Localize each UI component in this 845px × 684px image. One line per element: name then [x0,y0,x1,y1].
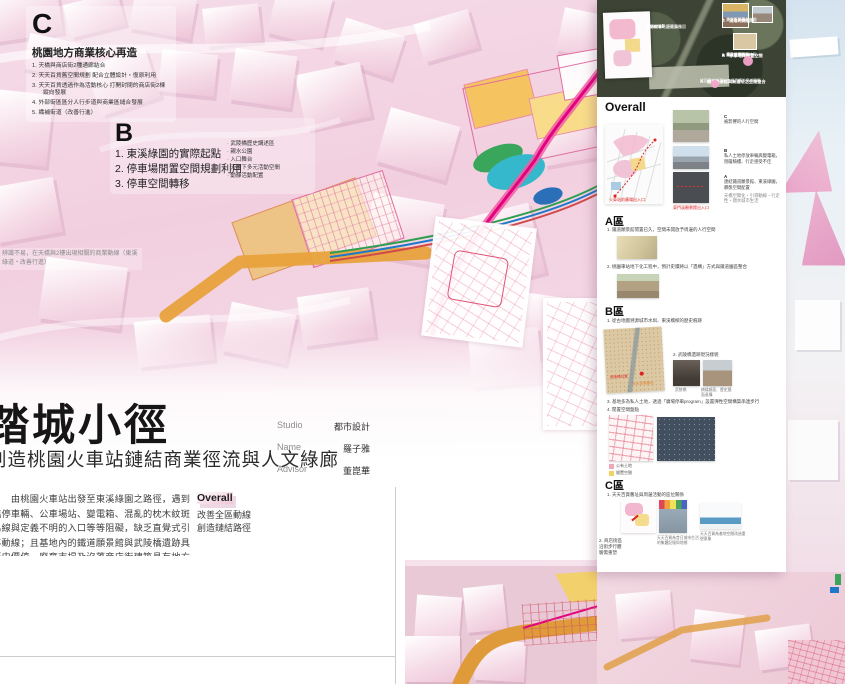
site-aerial-photo: Overall 桃園火車站至東溪綠園 步行體驗・鏈結舞台 C 沒落的商店街 1.… [597,0,786,97]
color-accent-blue [830,587,839,593]
advisor-value: 董崑華 [343,464,370,477]
historic-map: 武陵橋位置 天天百貨舊址 [603,327,664,394]
zone-b-subitem: 入口舞台 [227,157,297,165]
zone-c-item: 4. 外部街區區分人行步道與商業區縫合發展 [32,100,170,108]
photo-thumbnail-department-store [722,3,749,28]
department-store-facade-photo [659,500,687,533]
overall-caption-b: B 私人土地停放車輛與變電箱，阻礙騎樓、行走感受不佳 [724,148,782,165]
building-block [229,48,298,108]
building-block [0,177,62,244]
zone-b-subitem: 武陵橋歷史講述區 [227,141,297,149]
name-value: 羅子雅 [343,442,370,455]
route-dash-line [677,186,705,187]
aerial-plan-photo [673,172,709,203]
zoning-diagram [621,500,656,533]
pink-shard-graphic [780,125,845,205]
building-block [414,9,479,63]
zone-b-item-text: 3. 基地多為私人土地，透過「廣場停車program」設置彈性空間構築串連步行 [607,399,782,405]
legend-label: 閒置空間 [616,470,632,476]
intro-overall-line: 改善全區動線 [197,508,251,521]
highlight-block-orange [463,69,538,130]
poster-title: 踏城小徑 [0,391,170,453]
vision-hall-photo [617,236,657,259]
zone-c-item-text: 1. 天天百貨舊址與周邊活動的區位關係 [607,492,779,498]
zone-c-title: 桃園地方商業核心再造 [32,45,170,60]
map-label-entrance: 東門溪願景館出入口 [673,205,709,211]
zone-b-item-text: 4. 閒置空間盤點 [607,407,782,413]
caption-subtext: 天橋空間化・引導動線・行走性・親水城市生活 [724,193,782,205]
zone-b-subitem: 動靜活動配置 [227,173,297,181]
zone-a-item-text: 2. 桃園車站地下化工程中，預計史蹟將以「遺構」方式與鐵道園區整合 [607,264,779,270]
intro-overall-title: Overall [197,492,233,504]
construction-site-photo [617,274,659,298]
plan-drawing [421,216,537,348]
legend-swatch-pink [609,464,614,469]
streetview-photo [673,146,709,169]
grid-hairline-vertical [395,487,396,684]
overall-caption-a: A 連結鐵道願景館、東溪綠園，靜態空間配置 天橋空間化・引導動線・行走性・親水城… [724,174,782,204]
caption-text: 私人土地停放車輛與變電箱，阻礙騎樓、行走感受不佳 [724,153,782,165]
credits-block: Studio 都市設計 Name 羅子雅 Advisor 董崑華 [277,420,370,486]
credit-row: Studio 都市設計 [277,420,370,433]
axonometric-diagram [700,503,741,529]
annotation-block-c: C 桃園地方商業核心再造 1. 天橋與商店街2種通廊結合 2. 天天百貨舊空間規… [26,6,176,122]
legend-row: 閒置空間 [609,470,632,476]
inset-zone-pink [613,50,632,67]
building-block [202,3,262,47]
image-caption: 天天百貨為基地空間改造重塑意象 [700,532,746,542]
credit-row: Advisor 董崑華 [277,464,370,477]
facade-rainbow-band [659,500,687,509]
overall-inset-map [603,11,652,79]
zone-c-item-text: 2. 商店街區沿街步行體驗需重塑 [599,538,625,556]
photo-caption: 武陵橋 [675,388,701,393]
satellite-detail-map [657,417,715,461]
building-block [267,0,333,46]
section-heading-zone-c: C區 [605,477,624,493]
image-caption: 天天百貨為昔日城市生活的集體記憶與地標 [657,536,699,546]
site-outline [446,249,509,308]
studio-label: Studio [277,420,303,433]
building-block [376,107,461,181]
legend-row: 公有土地 [609,463,632,469]
site-marker-dot [711,80,719,88]
zone-c-item: 3. 天天百貨透過作為活動核心 打開封閉的商店街2棟縱向發展 [32,83,170,98]
name-label: Name [277,442,301,455]
photo-thumbnail-old-map [733,33,757,50]
zone-b-item-text: 2. 武陵橋遺跡現況樣貌 [673,352,781,358]
margin-note: 辨識不易，在天橋與2樓出現相關的商業動線（東溪綠道・改善行進） [0,248,142,270]
bridge-ruin-photo [673,360,700,386]
hist-map-label: 天天百貨舊址 [632,381,654,387]
overall-plan-map [605,124,663,204]
color-accent-green [835,574,841,585]
zone-b-sublist: 武陵橋歷史講述區 親水公園 入口舞台 天橋下多元活動空間 動靜活動配置 [227,141,297,181]
zone-letter-c: C [32,10,170,38]
site-marker-dot [640,372,644,376]
building-block [789,36,838,57]
callout-c-item: 2. 商店街與騎樓空間 [722,18,757,23]
credit-row: Name 羅子雅 [277,442,370,455]
zone-a-item-text: 1. 鐵道願景館閒置已久，空間未開放予周邊的人行空間 [607,227,779,233]
grid-hairline-horizontal [0,656,395,657]
bottom-white-area [0,556,405,684]
pink-shard-graphic [789,187,845,274]
zone-b-subitem: 天橋下多元活動空間 [227,165,297,173]
analysis-panel: Overall 桃園火車站至東溪綠園 步行體驗・鏈結舞台 C 沒落的商店街 1.… [597,0,786,572]
building-block [795,300,840,350]
site-map-tile [788,640,845,684]
legend-label: 公有土地 [616,463,632,469]
caption-text: 連結鐵道願景館、東溪綠園，靜態空間配置 [724,179,782,191]
site-marker-dot [743,56,753,66]
overall-caption-c: C 被影響的人行空間 [724,114,782,125]
aerial-overlay-line: 步行體驗・鏈結舞台 [646,24,682,30]
streetview-photo [673,110,709,142]
zone-b-item-text: 1. 從古地圖溯源城市水圳、東溪橋樑的歷史痕跡 [607,318,779,324]
zone-c-item: 5. 織補街道（改善行進） [32,110,170,118]
studio-value: 都市設計 [334,420,370,433]
callout-a-sub: 桃園車站地下化工程遺構與鐵道園區 [700,79,761,84]
zone-b-subitem: 親水公園 [227,149,297,157]
zone-c-item: 1. 天橋與商店街2種通廊結合 [32,63,170,71]
building-block [788,420,838,480]
street-photo [703,360,732,386]
zone-c-item: 2. 天天百貨舊空間規劃 配合立體設計・復原利用 [32,73,170,81]
photo-caption: 橋樑斷面、歷史牆面遺構 [701,388,735,398]
inset-zone-pink [609,19,636,40]
caption-text: 被影響的人行空間 [724,119,782,125]
legend-swatch-yellow [609,471,614,476]
map-label-entrance: 火車站前廣場出入口 [609,197,645,203]
intro-overall-line: 創造鏈結路徑 [197,521,251,534]
advisor-label: Advisor [277,464,307,477]
hist-map-label: 武陵橋位置 [610,374,628,380]
plan-drawing [543,298,601,430]
section-heading-overall: Overall [605,100,646,114]
land-ownership-map [609,415,653,461]
plan-streets [547,302,597,426]
section-heading-zone-b: B區 [605,303,624,319]
